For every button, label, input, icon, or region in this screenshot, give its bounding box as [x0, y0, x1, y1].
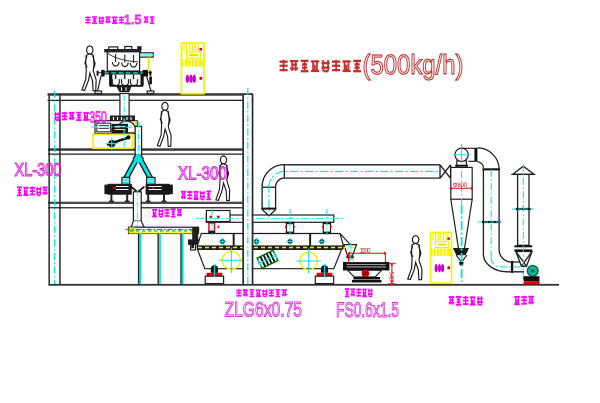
- svg-text:XL-300: XL-300: [15, 159, 62, 180]
- svg-text:1500: 1500: [360, 248, 371, 255]
- svg-text:350: 350: [89, 109, 107, 127]
- svg-text:1.5: 1.5: [124, 12, 142, 27]
- svg-text:XL-300: XL-300: [178, 163, 227, 184]
- svg-text:548: 548: [388, 272, 394, 283]
- svg-text:(500kg/h): (500kg/h): [363, 48, 464, 80]
- svg-text:ZLG6x0.75: ZLG6x0.75: [225, 297, 303, 321]
- svg-text:Φ800: Φ800: [453, 182, 468, 189]
- svg-text:FS0.6x1.5: FS0.6x1.5: [336, 298, 399, 322]
- svg-text:15: 15: [348, 256, 354, 262]
